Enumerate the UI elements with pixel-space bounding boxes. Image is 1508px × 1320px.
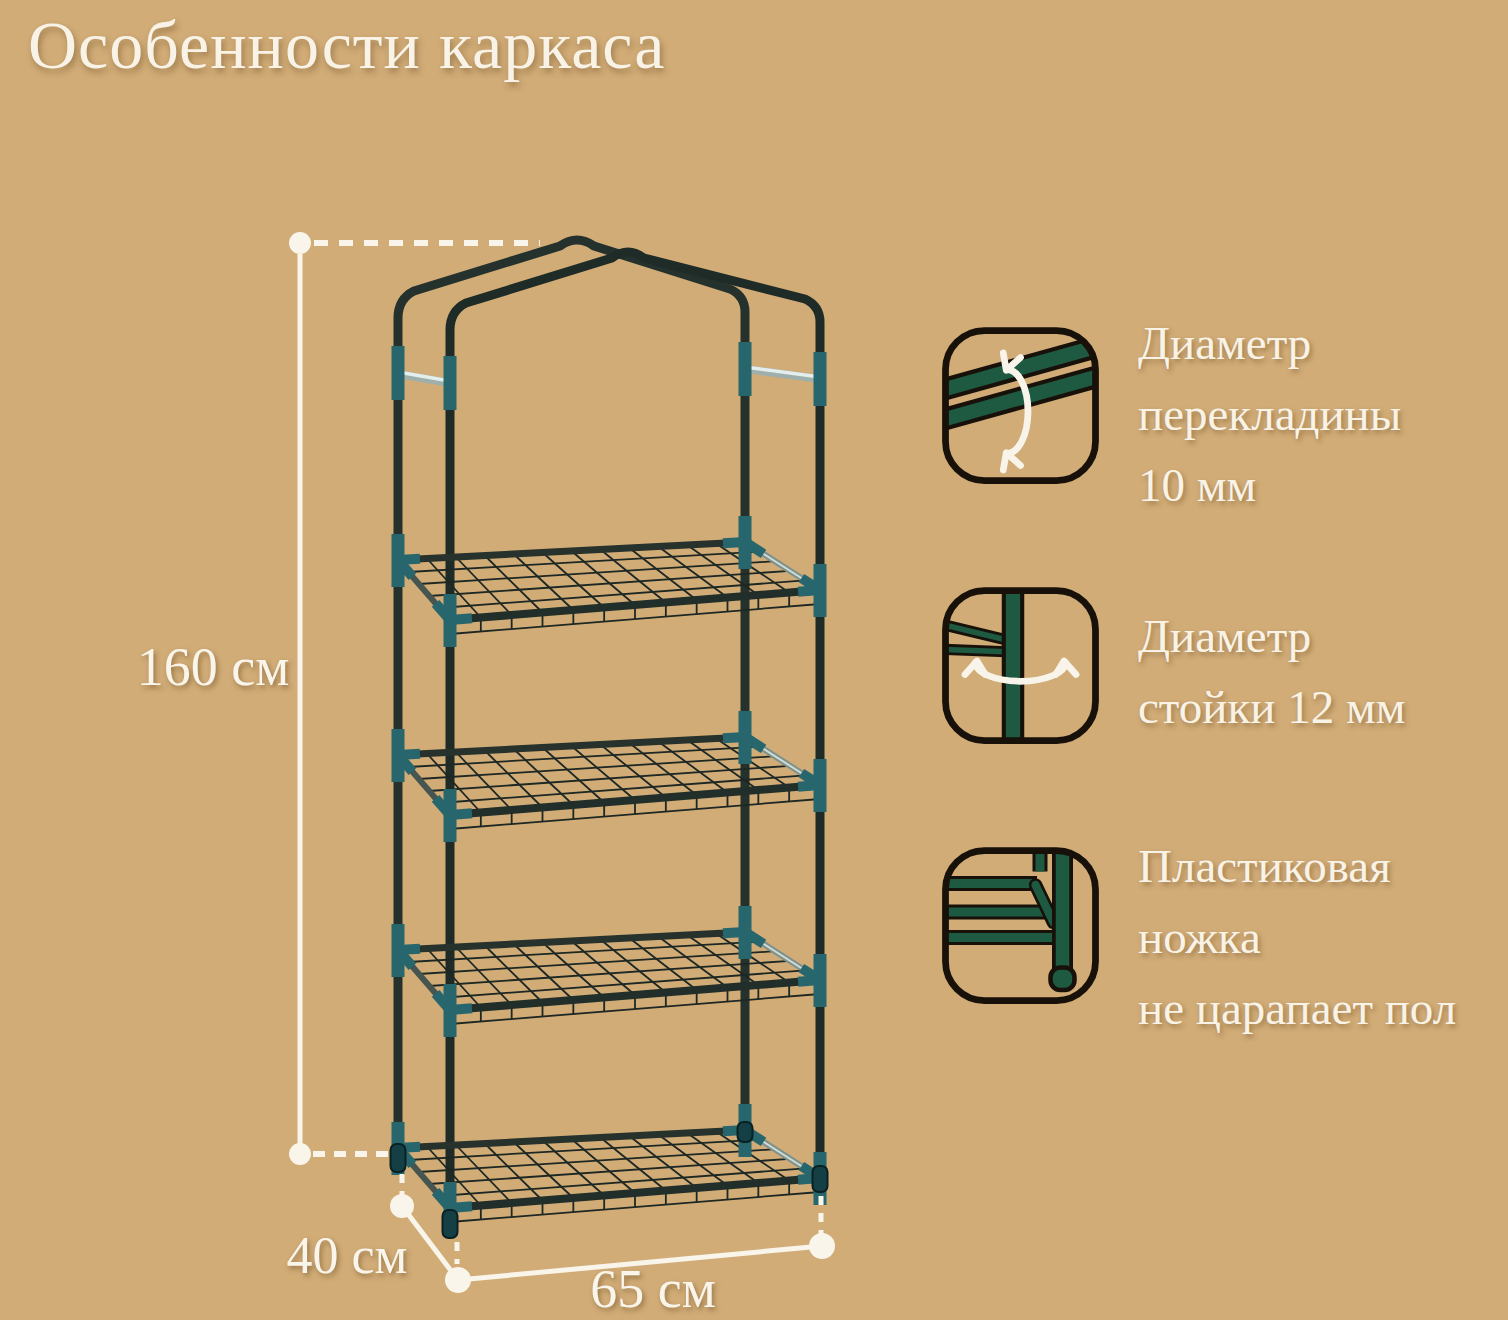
- plastic-foot-icon: [938, 843, 1103, 1008]
- top-tie-bars: [398, 342, 820, 410]
- crossbar-diameter-icon: [938, 323, 1103, 488]
- callout-line: ножка: [1138, 902, 1456, 973]
- callout-line: стойки 12 мм: [1138, 672, 1405, 743]
- infographic-canvas: Особенности каркаса: [0, 0, 1508, 1320]
- callout-line: 10 мм: [1138, 450, 1401, 521]
- callout-plastic-foot: Пластиковая ножка не царапает пол: [938, 843, 1508, 1013]
- callout-line: Диаметр: [1138, 308, 1401, 379]
- shoulder-connectors: [398, 342, 820, 410]
- callout-line: Диаметр: [1138, 601, 1405, 672]
- rack-frame-tubes: [398, 240, 820, 1216]
- front-frame-tube: [450, 252, 820, 1216]
- callout-crossbar-diameter: Диаметр перекладины 10 мм: [938, 323, 1508, 493]
- callout-line: перекладины: [1138, 379, 1401, 450]
- depth-dimension-label: 40 см: [252, 1226, 442, 1285]
- callout-line: не царапает пол: [1138, 973, 1456, 1044]
- callout-post-diameter: Диаметр стойки 12 мм: [938, 583, 1508, 753]
- post-diameter-icon: [938, 583, 1103, 748]
- width-dimension-label: 65 см: [548, 1258, 758, 1320]
- callout-line: Пластиковая: [1138, 831, 1456, 902]
- height-dimension-label: 160 см: [118, 636, 308, 698]
- wire-shelves: [398, 516, 820, 1235]
